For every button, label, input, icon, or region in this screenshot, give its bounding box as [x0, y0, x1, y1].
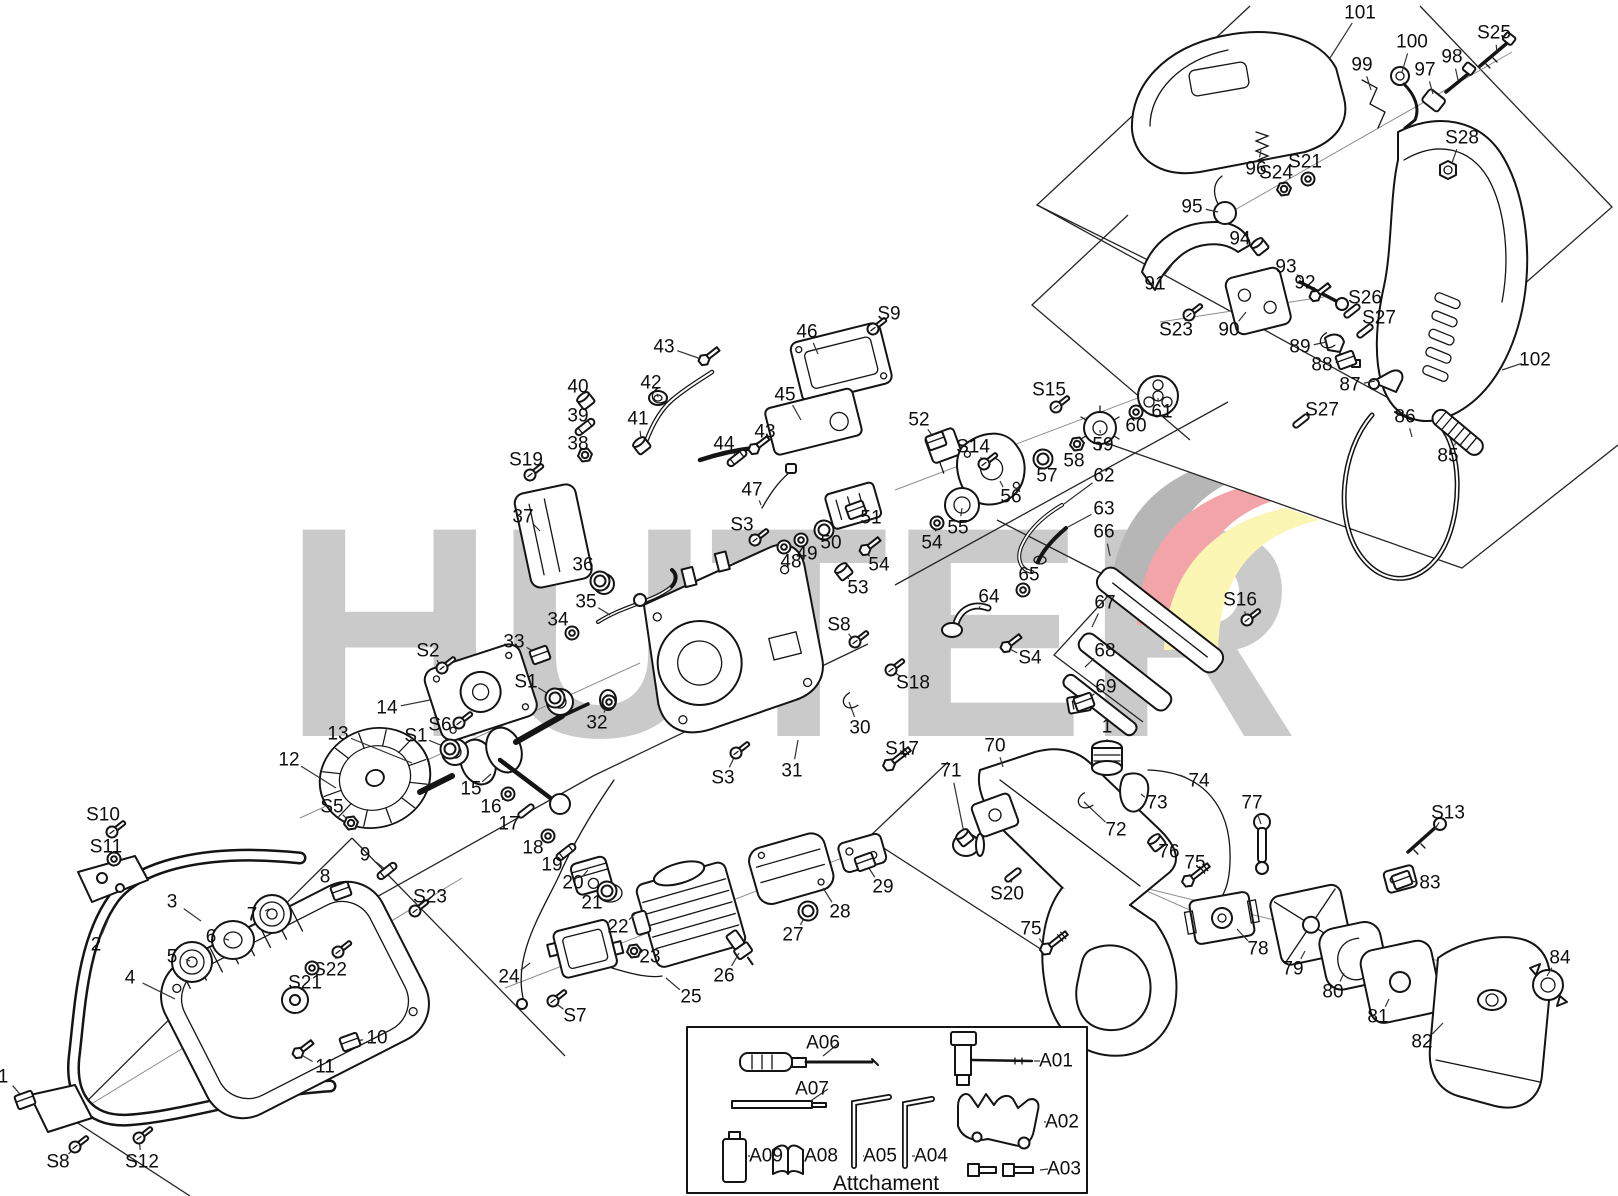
part-label-84: 84	[1549, 948, 1571, 969]
part-label-S18: S18	[896, 673, 930, 694]
part-label-62: 62	[1093, 466, 1114, 487]
part-label-52: 52	[908, 410, 929, 431]
part-label-22: 22	[607, 917, 628, 938]
part-label-S7: S7	[563, 1006, 586, 1027]
part-label-S21: S21	[288, 973, 322, 994]
part-label-69: 69	[1095, 677, 1116, 698]
part-label-54: 54	[868, 555, 890, 576]
attachment-label-A03: A03	[1047, 1159, 1081, 1180]
part-label-7: 7	[247, 905, 258, 926]
part-label-68: 68	[1094, 641, 1115, 662]
part-label-54: 54	[921, 533, 943, 554]
part-label-90: 90	[1218, 320, 1239, 341]
part-label-37: 37	[512, 507, 533, 528]
part-label-34: 34	[547, 610, 569, 631]
part-label-S6: S6	[428, 715, 451, 736]
part-label-S25: S25	[1477, 23, 1511, 44]
part-label-20: 20	[562, 873, 583, 894]
part-label-S21: S21	[1288, 152, 1322, 173]
part-label-38: 38	[567, 434, 588, 455]
leader-line	[657, 394, 658, 397]
part-label-17: 17	[498, 814, 519, 835]
part-label-S27: S27	[1362, 308, 1396, 329]
part-label-10: 10	[366, 1028, 387, 1049]
part-label-4: 4	[125, 968, 136, 989]
part-label-56: 56	[1000, 487, 1021, 508]
block-part-glyph	[11, 1086, 40, 1114]
part-label-92: 92	[1294, 273, 1315, 294]
part-label-35: 35	[575, 592, 596, 613]
leader-line	[823, 888, 832, 902]
part-label-S14: S14	[956, 437, 990, 458]
part-label-51: 51	[860, 508, 881, 529]
part-label-73: 73	[1146, 793, 1167, 814]
part-label-S8: S8	[827, 615, 850, 636]
part-label-61: 61	[1151, 402, 1172, 423]
part-label-26: 26	[713, 966, 734, 987]
engine-top-drawing	[517, 780, 888, 1009]
part-label-59: 59	[1092, 435, 1113, 456]
part-label-S5: S5	[320, 797, 343, 818]
part-label-21: 21	[581, 893, 602, 914]
part-label-87: 87	[1339, 375, 1360, 396]
part-label-2: 2	[91, 935, 102, 956]
part-label-46: 46	[796, 322, 817, 343]
part-label-55: 55	[947, 518, 968, 539]
part-label-70: 70	[984, 736, 1005, 757]
part-label-49: 49	[796, 544, 817, 565]
starter-cover-drawing	[147, 868, 442, 1132]
attachment-label-A08: A08	[804, 1146, 838, 1167]
part-label-81: 81	[1367, 1007, 1388, 1028]
part-label-S23: S23	[413, 887, 447, 908]
part-label-85: 85	[1437, 446, 1458, 467]
part-label-77: 77	[1241, 793, 1262, 814]
part-label-1: 1	[1102, 717, 1113, 738]
part-label-40: 40	[567, 377, 588, 398]
part-label-23: 23	[639, 947, 660, 968]
part-label-89: 89	[1289, 337, 1310, 358]
diagram-canvas: HUTER	[0, 0, 1618, 1196]
part-label-64: 64	[978, 587, 1000, 608]
pin-part-glyph	[517, 803, 535, 818]
part-label-72: 72	[1105, 820, 1126, 841]
part-label-99: 99	[1351, 55, 1372, 76]
part-label-S1: S1	[514, 672, 537, 693]
part-label-S19: S19	[509, 450, 543, 471]
part-label-19: 19	[541, 855, 562, 876]
part-label-32: 32	[586, 713, 607, 734]
part-label-25: 25	[680, 987, 701, 1008]
part-label-S27: S27	[1305, 400, 1339, 421]
part-label-S8: S8	[46, 1152, 69, 1173]
part-label-75: 75	[1184, 853, 1205, 874]
part-label-S15: S15	[1032, 380, 1066, 401]
part-label-6: 6	[206, 927, 217, 948]
part-label-S17: S17	[885, 739, 919, 760]
part-label-43: 43	[754, 422, 775, 443]
ring-part-glyph	[795, 898, 822, 925]
part-label-27: 27	[782, 925, 803, 946]
part-label-S13: S13	[1431, 803, 1465, 824]
part-label-78: 78	[1247, 939, 1268, 960]
part-label-9: 9	[360, 845, 371, 866]
part-label-5: 5	[167, 947, 178, 968]
part-label-74: 74	[1188, 771, 1210, 792]
part-label-S11: S11	[90, 837, 122, 858]
part-label-86: 86	[1394, 407, 1415, 428]
part-label-97: 97	[1414, 60, 1435, 81]
part-label-63: 63	[1093, 499, 1114, 520]
part-label-29: 29	[872, 877, 893, 898]
leader-line	[1496, 45, 1497, 52]
part-label-8: 8	[320, 867, 331, 888]
part-label-S20: S20	[990, 884, 1024, 905]
part-label-57: 57	[1036, 466, 1057, 487]
part-label-93: 93	[1275, 257, 1296, 278]
leader-line	[666, 978, 680, 990]
part-label-42: 42	[640, 373, 661, 394]
part-label-88: 88	[1311, 355, 1332, 376]
part-label-75: 75	[1020, 919, 1041, 940]
part-label-47: 47	[741, 480, 762, 501]
part-label-S16: S16	[1223, 590, 1257, 611]
exploded-parts-diagram: HUTER	[0, 0, 1618, 1196]
part-label-76: 76	[1158, 842, 1179, 863]
part-label-94: 94	[1229, 229, 1251, 250]
part-label-79: 79	[1282, 959, 1303, 980]
part-label-44: 44	[713, 434, 735, 455]
part-label-S26: S26	[1348, 288, 1382, 309]
part-label-S3: S3	[730, 515, 753, 536]
part-label-60: 60	[1125, 416, 1146, 437]
part-label-65: 65	[1018, 565, 1039, 586]
part-label-S9: S9	[877, 304, 900, 325]
attachment-caption: Attchament	[833, 1172, 939, 1195]
part-label-S28: S28	[1445, 128, 1479, 149]
part-label-45: 45	[774, 385, 795, 406]
part-label-33: 33	[503, 632, 524, 653]
part-label-11: 11	[315, 1057, 335, 1078]
part-label-31: 31	[781, 761, 802, 782]
attachment-label-A05: A05	[863, 1146, 897, 1167]
part-label-83: 83	[1419, 873, 1440, 894]
attachment-label-A01: A01	[1039, 1051, 1073, 1072]
part-label-66: 66	[1093, 522, 1114, 543]
part-label-S12: S12	[125, 1152, 159, 1173]
part-label-43: 43	[653, 337, 674, 358]
part-label-S10: S10	[86, 805, 120, 826]
part-label-100: 100	[1396, 32, 1428, 53]
part-label-41: 41	[627, 409, 648, 430]
part-label-13: 13	[327, 724, 348, 745]
leader-line	[184, 909, 201, 921]
screw-part-glyph	[67, 1133, 91, 1155]
part-label-1: 1	[0, 1067, 8, 1088]
part-label-24: 24	[498, 967, 520, 988]
part-label-80: 80	[1322, 982, 1343, 1003]
part-label-S1: S1	[404, 726, 427, 747]
part-label-36: 36	[572, 555, 593, 576]
part-label-71: 71	[940, 761, 961, 782]
part-label-18: 18	[522, 838, 543, 859]
part-label-58: 58	[1063, 451, 1084, 472]
part-label-102: 102	[1519, 350, 1551, 371]
attachment-box: Attchament A06A07A09A08A05A04A01A02A03	[687, 1027, 1087, 1195]
attachment-label-A06: A06	[806, 1033, 840, 1054]
pin-part-glyph	[1004, 867, 1022, 882]
part-label-53: 53	[847, 578, 868, 599]
part-label-30: 30	[849, 718, 870, 739]
part-label-50: 50	[820, 533, 841, 554]
part-label-12: 12	[278, 750, 299, 771]
part-label-82: 82	[1411, 1032, 1432, 1053]
part-label-98: 98	[1441, 47, 1462, 68]
part-label-67: 67	[1094, 593, 1115, 614]
part-label-28: 28	[829, 902, 850, 923]
part-label-39: 39	[567, 406, 588, 427]
part-label-S4: S4	[1018, 648, 1042, 669]
part-label-S3: S3	[711, 768, 734, 789]
part-label-91: 91	[1144, 274, 1165, 295]
part-label-14: 14	[376, 698, 398, 719]
attachment-label-A04: A04	[914, 1146, 948, 1167]
part-label-S2: S2	[416, 641, 439, 662]
part-label-101: 101	[1344, 3, 1376, 24]
part-label-95: 95	[1181, 197, 1202, 218]
bolt-part-glyph	[697, 345, 722, 368]
part-label-S23: S23	[1159, 320, 1193, 341]
screw-part-glyph	[131, 1124, 155, 1146]
attachment-label-A07: A07	[795, 1079, 829, 1100]
attachment-label-A09: A09	[749, 1146, 783, 1167]
part-label-3: 3	[167, 892, 178, 913]
part-label-15: 15	[460, 779, 481, 800]
attachment-label-A02: A02	[1045, 1112, 1079, 1133]
carb-filter-tank-drawing	[1183, 818, 1567, 1108]
